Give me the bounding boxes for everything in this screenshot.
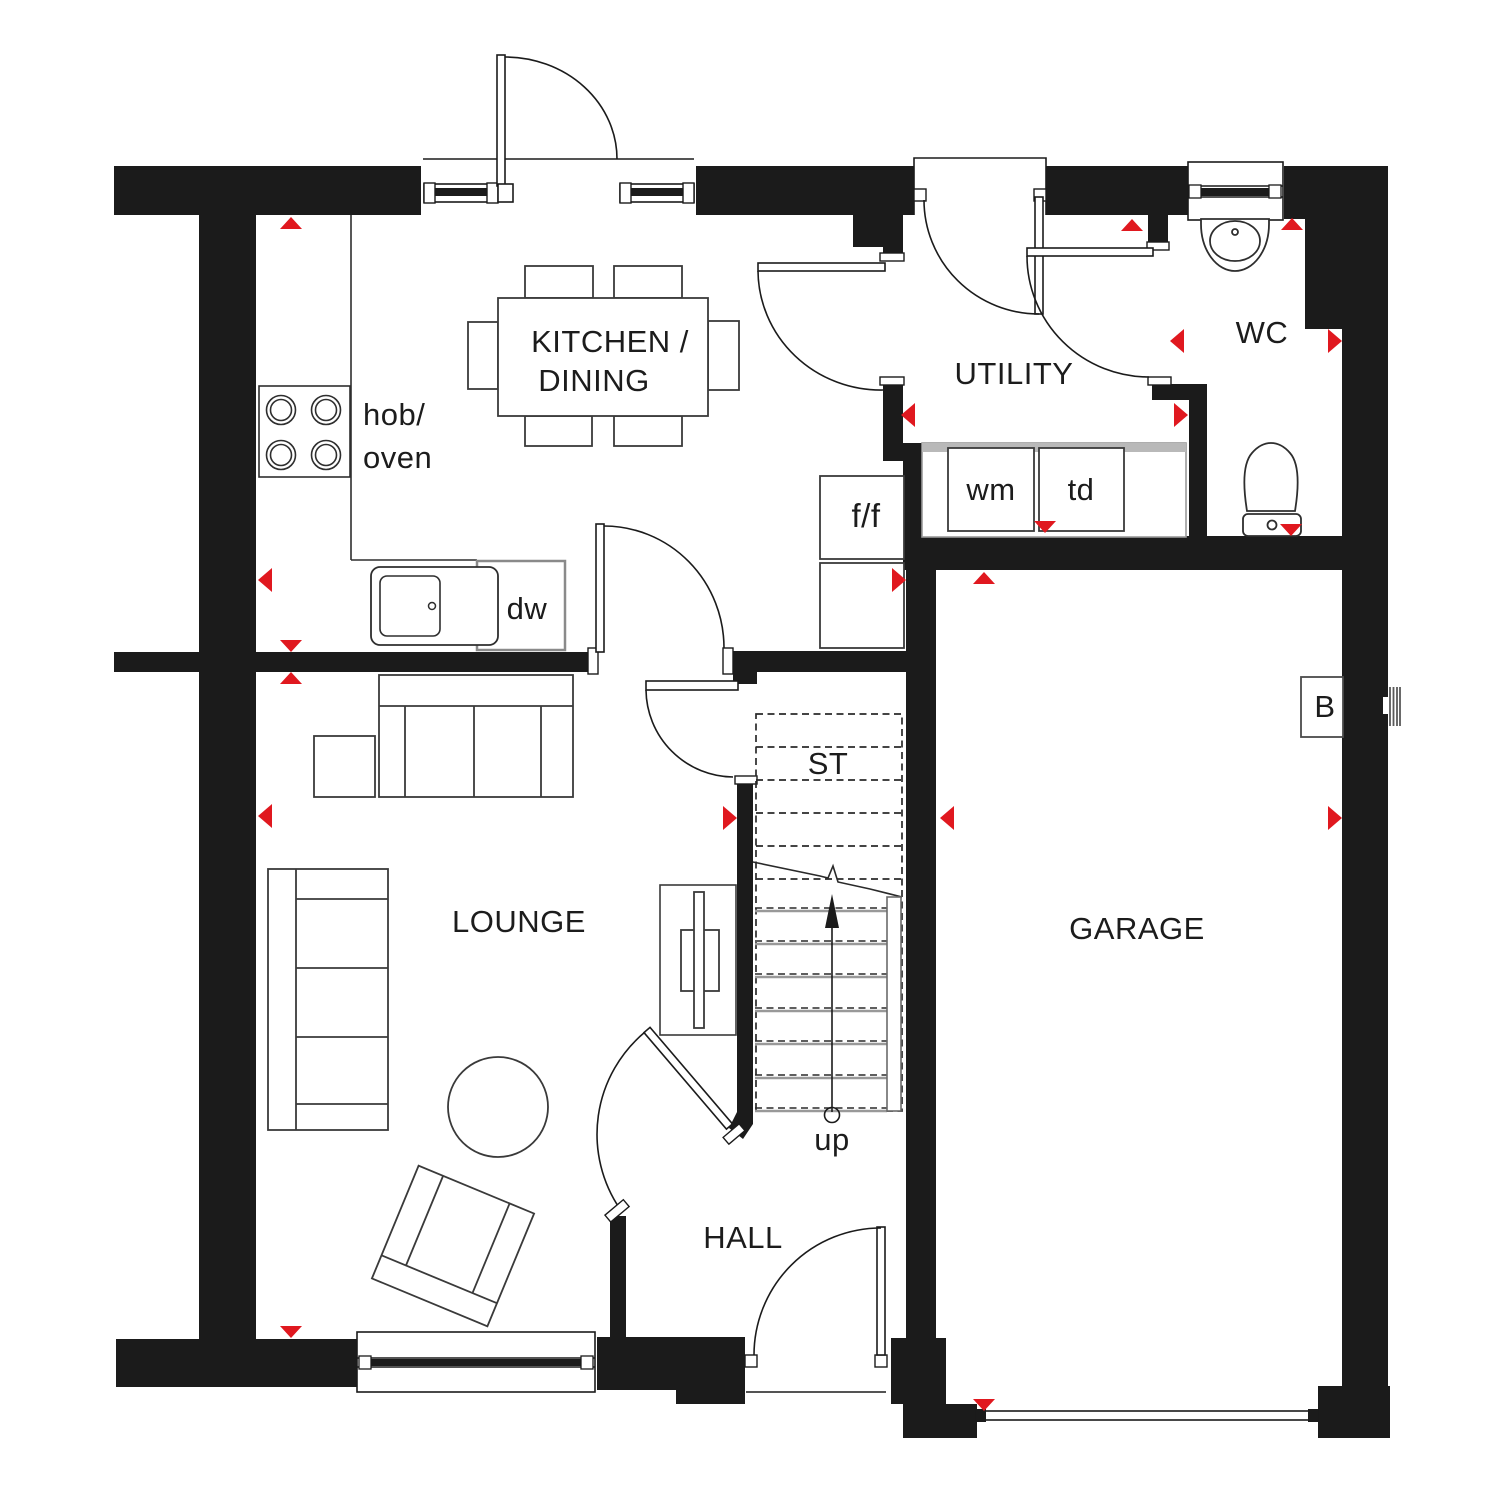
svg-text:HALL: HALL xyxy=(703,1220,783,1255)
svg-text:GARAGE: GARAGE xyxy=(1069,911,1205,946)
svg-text:DINING: DINING xyxy=(538,363,650,398)
svg-text:ST: ST xyxy=(808,746,849,781)
svg-text:td: td xyxy=(1068,472,1095,507)
svg-text:hob/: hob/ xyxy=(363,397,425,432)
svg-text:wm: wm xyxy=(965,472,1015,507)
svg-text:WC: WC xyxy=(1236,315,1289,350)
svg-text:B: B xyxy=(1314,689,1335,724)
svg-text:UTILITY: UTILITY xyxy=(955,356,1074,391)
svg-text:LOUNGE: LOUNGE xyxy=(452,904,586,939)
svg-text:KITCHEN /: KITCHEN / xyxy=(531,324,689,359)
svg-text:dw: dw xyxy=(507,591,548,626)
svg-text:f/f: f/f xyxy=(851,497,880,534)
svg-text:oven: oven xyxy=(363,440,432,475)
svg-text:up: up xyxy=(814,1122,849,1157)
